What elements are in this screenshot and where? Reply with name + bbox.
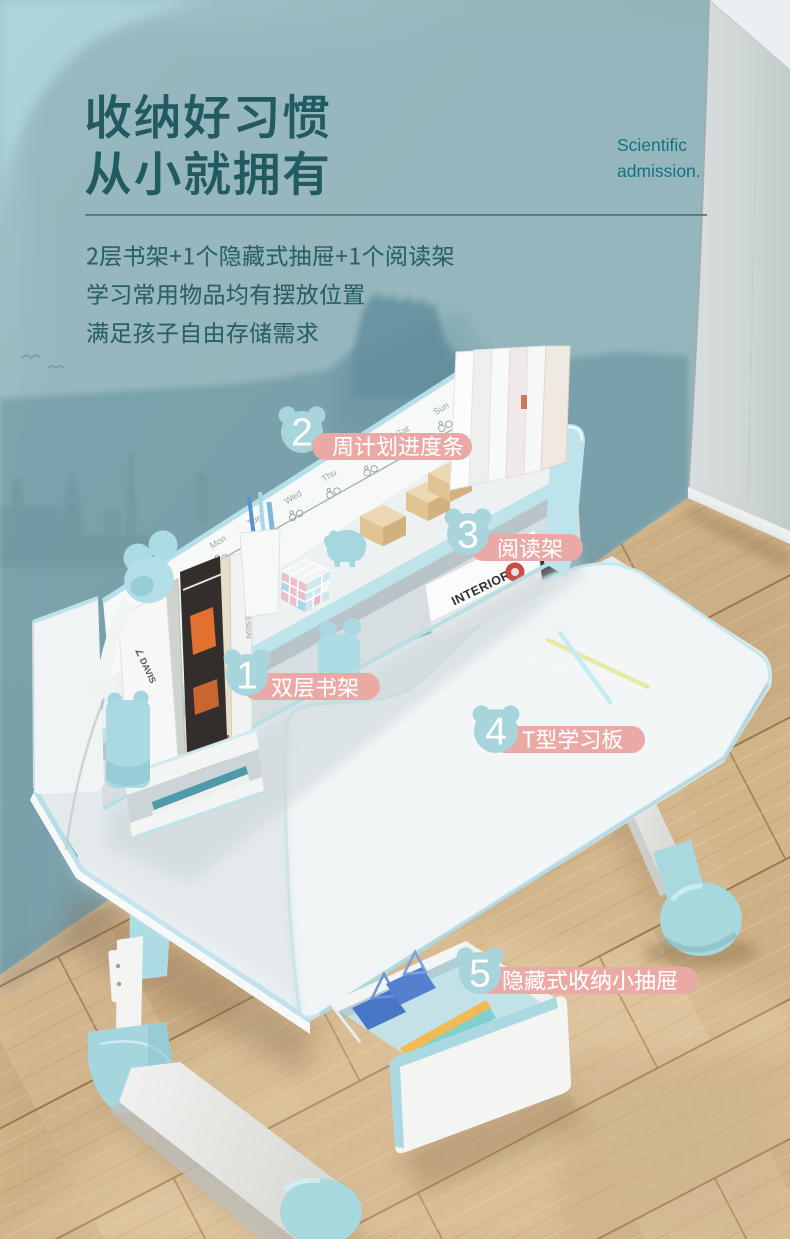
svg-text:5: 5 (469, 953, 491, 996)
svg-text:admission.: admission. (617, 161, 701, 181)
svg-text:4: 4 (485, 711, 507, 754)
svg-text:2: 2 (291, 412, 313, 455)
svg-text:Scientific: Scientific (617, 135, 687, 155)
svg-text:1: 1 (236, 655, 258, 698)
svg-text:3: 3 (457, 514, 479, 557)
